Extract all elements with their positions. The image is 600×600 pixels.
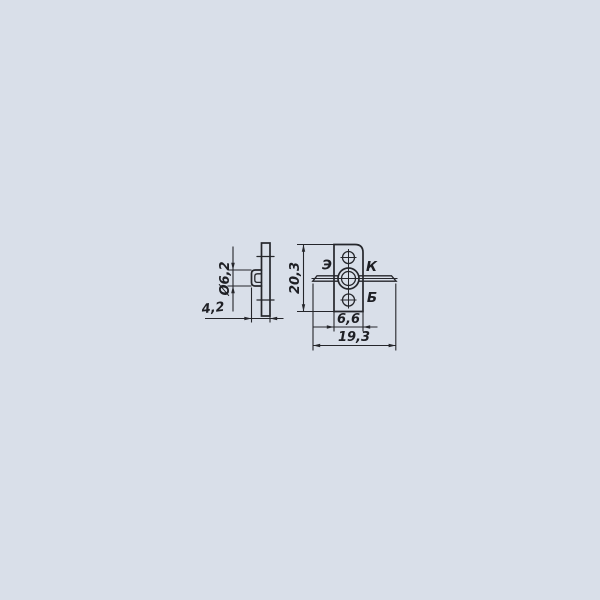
dim-height-label: 20,3 [288,262,303,294]
dim-depth: 4,2 [200,288,284,323]
pin-label-base: Б [367,290,377,306]
arrowhead-right [244,317,251,320]
arrowhead-up [302,245,305,252]
arrowhead-left [363,325,370,328]
arrowhead-right [389,344,396,347]
pin-label-emitter: Э [322,258,332,274]
arrowhead-left [313,344,320,347]
side-view: Ø6,2 4,2 [200,243,284,323]
transistor-can-side [252,270,262,286]
arrowhead-down [302,304,305,311]
dim-body-width: 6,6 [313,312,378,332]
dim-overall-width-label: 19,3 [338,330,370,345]
transistor-drawing: Ø6,2 4,2 Э К Б [0,0,600,600]
dim-depth-label: 4,2 [200,300,226,318]
dim-body-width-label: 6,6 [337,312,360,327]
dim-diameter-label: Ø6,2 [218,261,233,296]
can-cap-side [255,274,262,283]
front-view: Э К Б 20,3 6,6 19,3 [288,245,398,351]
arrowhead-left [270,317,277,320]
arrowhead-right [327,325,334,328]
pin-label-collector: К [366,259,378,275]
scanned-drawing-page: Ø6,2 4,2 Э К Б [0,0,600,600]
flange-plate-side [262,243,271,316]
